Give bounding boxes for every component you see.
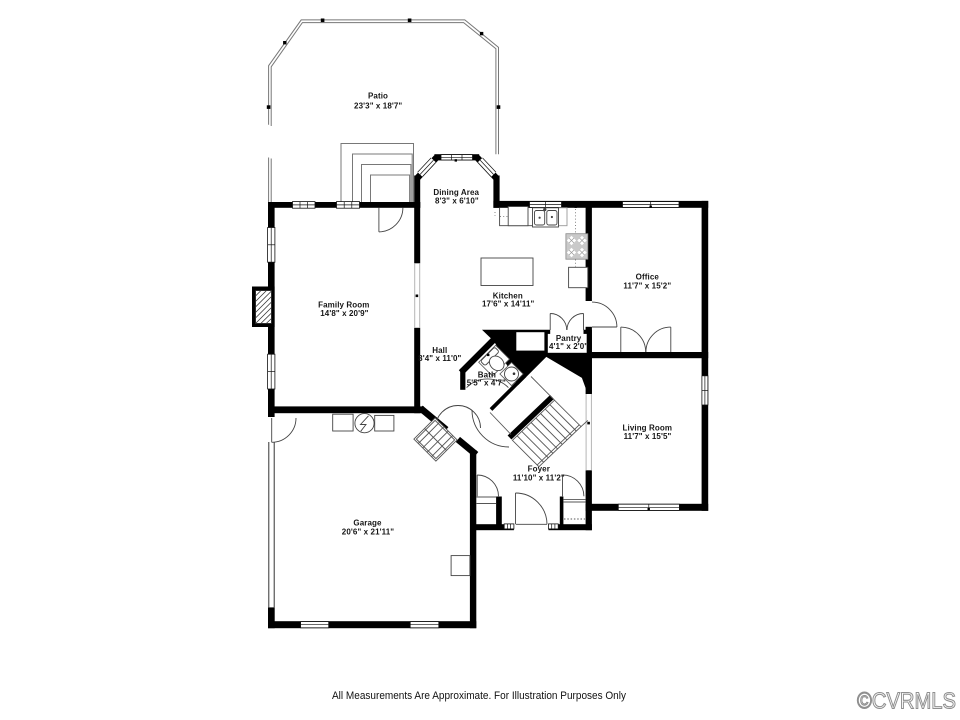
svg-text:Garage: Garage	[353, 519, 382, 528]
svg-text:4'1" x 2'0": 4'1" x 2'0"	[549, 342, 588, 351]
svg-text:5'5" x 4'7": 5'5" x 4'7"	[467, 379, 506, 388]
svg-text:11'7" x 15'5": 11'7" x 15'5"	[624, 432, 672, 441]
svg-text:20'6" x 21'11": 20'6" x 21'11"	[342, 528, 394, 537]
svg-text:11'10" x 11'2": 11'10" x 11'2"	[513, 473, 565, 482]
svg-text:8'3" x 6'10": 8'3" x 6'10"	[435, 197, 479, 206]
svg-text:All Measurements Are Approxima: All Measurements Are Approximate. For Il…	[332, 690, 627, 702]
svg-text:14'8" x 20'9": 14'8" x 20'9"	[320, 309, 368, 318]
svg-text:Office: Office	[636, 273, 660, 282]
svg-text:17'6" x 14'11": 17'6" x 14'11"	[482, 300, 534, 309]
svg-text:Foyer: Foyer	[528, 465, 550, 474]
svg-text:8'4" x 11'0": 8'4" x 11'0"	[418, 354, 461, 363]
svg-text:Patio: Patio	[368, 91, 388, 100]
svg-text:11'7" x 15'2": 11'7" x 15'2"	[623, 281, 671, 290]
svg-text:23'3" x 18'7": 23'3" x 18'7"	[354, 101, 402, 110]
svg-text:©CVRMLS: ©CVRMLS	[857, 688, 956, 714]
